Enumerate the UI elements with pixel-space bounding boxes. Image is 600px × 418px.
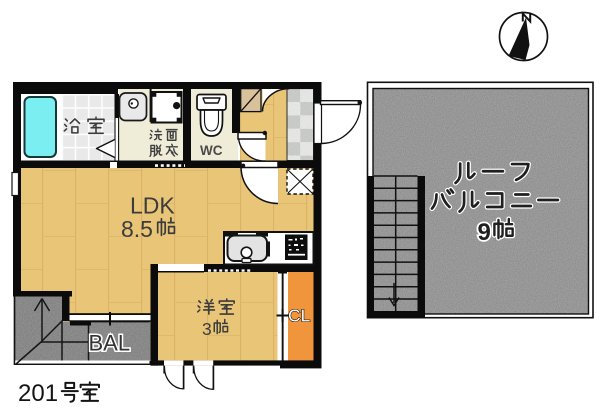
svg-text:9: 9 (478, 219, 491, 246)
svg-text:8.5: 8.5 (121, 216, 153, 242)
svg-text:BAL: BAL (89, 331, 131, 356)
svg-text:WC: WC (200, 143, 223, 158)
svg-text:LDK: LDK (130, 193, 175, 219)
svg-text:3: 3 (202, 319, 212, 339)
svg-text:201: 201 (18, 380, 58, 407)
svg-text:CL: CL (288, 306, 311, 326)
